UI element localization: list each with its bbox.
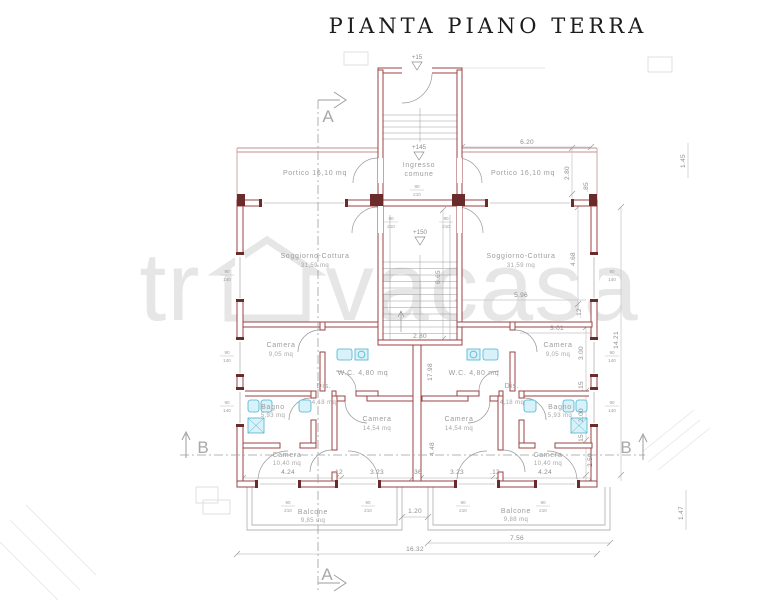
room-label-camera-mid-left: Camera — [362, 416, 391, 423]
door-arc — [353, 158, 378, 183]
room-area-balcone-right: 9,88 mq — [504, 517, 528, 523]
door-h: 210 — [442, 224, 450, 229]
window-size-label: 90 140 — [605, 350, 619, 363]
dim-balcony-right-width: 7.56 — [510, 535, 524, 542]
wall-partition — [356, 391, 378, 396]
wall-partition — [457, 391, 479, 396]
context-structure — [203, 500, 230, 514]
wall-partition — [519, 391, 524, 398]
room-area-camera-top-right: 9,05 mq — [546, 352, 570, 358]
dim-stair-depth: 6.65 — [435, 270, 442, 284]
door-h: 210 — [387, 224, 395, 229]
context-structure — [196, 487, 218, 503]
room-area-camera-bottom-right: 10,40 mq — [534, 461, 562, 467]
section-label-b-right: B — [620, 438, 631, 457]
fixture-toilet — [524, 400, 536, 412]
dim-wall-15a: .15 — [578, 381, 585, 391]
window-size-label: 90 140 — [220, 350, 234, 363]
dim-wall-15b: .15 — [578, 434, 585, 444]
dim-apt-depth: 14.21 — [613, 331, 620, 349]
door-size-label: 90 210 — [536, 500, 550, 513]
room-label-dis-right: Dis. — [505, 383, 520, 390]
level-stair: +150 — [413, 229, 427, 236]
room-label-portico-right: Portico 16,10 mq — [491, 170, 555, 177]
floor-plan-drawing: tr vacasa — [0, 0, 782, 600]
room-area-dis-right: 4,18 mq — [500, 400, 524, 406]
dim-stair-width: 2.80 — [413, 333, 427, 340]
wall-partition — [367, 396, 413, 401]
door-size-label: 90 210 — [410, 184, 424, 197]
watermark-house-icon — [219, 240, 315, 318]
dim-soggiorno-depth: 4.68 — [570, 252, 577, 266]
door-h: 210 — [284, 508, 292, 513]
dim-balcony-gap: 1.20 — [408, 508, 422, 515]
wall-partition — [311, 391, 316, 398]
room-area-camera-top-left: 9,05 mq — [269, 352, 293, 358]
door-w: 90 — [460, 500, 466, 505]
room-label-balcone-right: Balcone — [501, 508, 531, 515]
dim-bottom-323-right: 3.23 — [450, 469, 464, 476]
wall-partition — [332, 391, 336, 396]
door-w: 90 — [414, 184, 420, 189]
wall-partition — [510, 322, 515, 330]
door-size-label: 90 210 — [456, 500, 470, 513]
context-hatch — [642, 410, 710, 470]
door-size-label: 90 210 — [439, 216, 453, 229]
door-w: 90 — [540, 500, 546, 505]
dim-side-top-right: 1.45 — [680, 154, 687, 168]
window-w: 90 — [609, 350, 615, 355]
level-triangle-icon — [414, 152, 424, 160]
room-label-bagno-right: Bagno — [548, 404, 572, 411]
room-label-ingresso-2: comune — [404, 171, 433, 178]
dim-camera-width: 3.01 — [550, 325, 564, 332]
door-arc — [298, 330, 320, 352]
door-size-label: 90 210 — [384, 216, 398, 229]
dim-bottom-424-left: 4.24 — [281, 469, 295, 476]
room-label-camera-bottom-right: Camera — [533, 452, 562, 459]
room-label-soggiorno-left: Soggiorno-Cottura — [280, 253, 349, 260]
door-w: 90 — [388, 216, 394, 221]
wall-partition — [243, 322, 378, 327]
room-label-camera-top-left: Camera — [266, 342, 295, 349]
level-street: +15 — [412, 54, 423, 61]
room-area-soggiorno-right: 31,59 mq — [507, 263, 535, 269]
room-area-camera-mid-right: 14,54 mq — [445, 426, 473, 432]
dim-core-lower: 4.48 — [429, 442, 436, 456]
room-label-dis-left: Dis. — [317, 383, 332, 390]
dim-bottom-12-right: .12 — [490, 469, 500, 476]
fixture-sink — [483, 349, 498, 360]
dim-bagno-depth: 2.00 — [578, 408, 585, 422]
room-area-camera-bottom-left: 10,40 mq — [273, 461, 301, 467]
window-size-label: 90 140 — [220, 400, 234, 413]
watermark-text-left: tr — [139, 232, 200, 341]
window-w: 90 — [609, 400, 615, 405]
wall-partition — [243, 443, 280, 448]
room-label-camera-mid-right: Camera — [444, 416, 473, 423]
context-structure — [648, 57, 672, 72]
room-label-ingresso-1: Ingresso — [403, 162, 435, 169]
window-h: 140 — [223, 408, 231, 413]
window-size-label: 90 140 — [605, 400, 619, 413]
level-entrance: +145 — [412, 144, 426, 151]
wall-partition — [243, 391, 315, 396]
wall-partition — [555, 443, 592, 448]
room-label-wc-left: W.C. 4,80 mq — [338, 370, 389, 377]
wall-partition — [490, 396, 498, 401]
door-h: 210 — [364, 508, 372, 513]
page-title: PIANTA PIANO TERRA — [329, 14, 648, 38]
wall-party-center — [413, 345, 421, 481]
context-structure — [344, 52, 368, 65]
dim-camera-bottom-depth: 2.50 — [587, 453, 594, 467]
window-h: 140 — [223, 358, 231, 363]
dim-bottom-36: .36 — [412, 469, 422, 476]
room-area-soggiorno-left: 31,59 mq — [301, 263, 329, 269]
dim-pier: .85 — [583, 182, 590, 192]
dim-camera-depth: 3.00 — [578, 346, 585, 360]
door-arc — [457, 451, 487, 481]
wall-partition — [519, 420, 524, 443]
door-w: 90 — [285, 500, 291, 505]
door-size-label: 90 210 — [281, 500, 295, 513]
room-area-bagno-right: 5,93 mq — [548, 413, 572, 419]
room-label-bagno-left: Bagno — [261, 404, 285, 411]
window-h: 140 — [608, 408, 616, 413]
window-w: 90 — [609, 269, 615, 274]
fixture-sink — [248, 400, 259, 412]
fixture-washer — [467, 349, 480, 360]
wall-partition — [337, 396, 345, 401]
door-arc — [348, 451, 378, 481]
dim-wall-12: .12 — [576, 308, 583, 318]
fixture-sink — [337, 349, 352, 360]
dim-bottom-424-right: 4.24 — [538, 469, 552, 476]
window-w: 90 — [224, 350, 230, 355]
room-label-wc-right: W.C. 4,80 mq — [449, 370, 500, 377]
wall-partition — [300, 443, 316, 448]
door-arc — [402, 73, 432, 103]
dim-total-width: 16.32 — [406, 546, 424, 553]
floor-plan-page: tr vacasa — [0, 0, 782, 600]
room-label-soggiorno-right: Soggiorno-Cottura — [486, 253, 555, 260]
window-w: 90 — [224, 400, 230, 405]
room-label-camera-bottom-left: Camera — [272, 452, 301, 459]
window-h: 140 — [223, 277, 231, 282]
door-w: 90 — [443, 216, 449, 221]
level-markers: +15 +145 +150 — [412, 54, 428, 245]
dim-bottom-323-left: 3.23 — [370, 469, 384, 476]
wall-partition — [320, 322, 325, 330]
dim-portico-depth: 2.80 — [564, 166, 571, 180]
window-w: 90 — [224, 269, 230, 274]
fixture-toilet — [299, 400, 311, 412]
room-label-camera-top-right: Camera — [543, 342, 572, 349]
wall-partition — [311, 420, 316, 443]
section-arrow-b-left — [182, 432, 190, 458]
wall-partition — [457, 322, 592, 327]
door-h: 210 — [459, 508, 467, 513]
door-arc — [310, 450, 332, 472]
context-hatch — [0, 505, 96, 600]
fixture-washer — [355, 349, 368, 360]
door-h: 210 — [413, 192, 421, 197]
door-h: 210 — [539, 508, 547, 513]
room-label-balcone-left: Balcone — [298, 509, 328, 516]
door-arc — [352, 207, 378, 233]
section-arrow-b-right — [639, 434, 647, 460]
dim-soggiorno-width: 5.96 — [514, 292, 528, 299]
window-h: 140 — [608, 358, 616, 363]
room-area-balcone-left: 9,85 mq — [301, 518, 325, 524]
door-w: 90 — [365, 500, 371, 505]
dim-bottom-12-left: .12 — [333, 469, 343, 476]
section-label-a-bottom: A — [321, 565, 333, 584]
wall-partition — [519, 443, 535, 448]
door-size-label: 90 210 — [361, 500, 375, 513]
wall-partition — [499, 391, 503, 396]
room-area-bagno-left: 5,93 mq — [261, 413, 285, 419]
room-area-dis-left: 4,18 mq — [312, 400, 336, 406]
dim-core-depth: 17.98 — [427, 363, 434, 381]
section-label-a-top: A — [322, 107, 334, 126]
room-label-portico-left: Portico 16,10 mq — [283, 170, 347, 177]
window-h: 140 — [608, 277, 616, 282]
door-arc — [503, 450, 525, 472]
wall-stairwell-bottom — [378, 340, 462, 345]
dim-balcony-depth: 1.47 — [678, 506, 685, 520]
dim-portico-width: 6.20 — [520, 139, 534, 146]
section-label-b-left: B — [197, 438, 208, 457]
wall-partition — [422, 396, 468, 401]
room-area-camera-mid-left: 14,54 mq — [363, 426, 391, 432]
section-arrow-a-top — [318, 92, 346, 108]
